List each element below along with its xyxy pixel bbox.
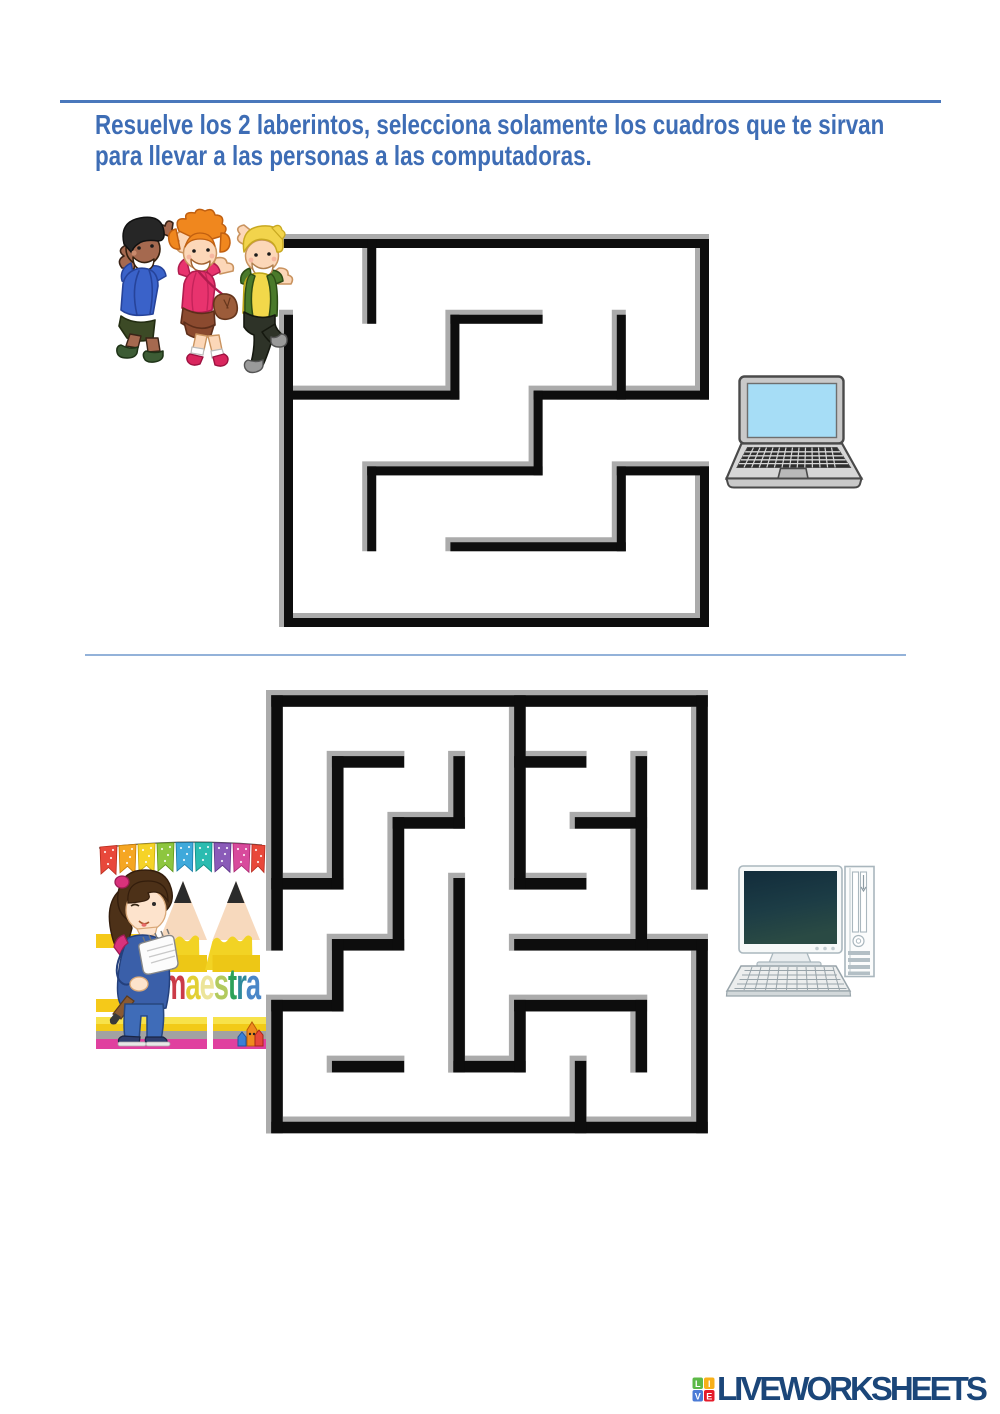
svg-text:L: L: [695, 1379, 701, 1389]
svg-text:I: I: [708, 1379, 711, 1389]
svg-text:E: E: [706, 1391, 712, 1401]
svg-text:V: V: [695, 1391, 701, 1401]
